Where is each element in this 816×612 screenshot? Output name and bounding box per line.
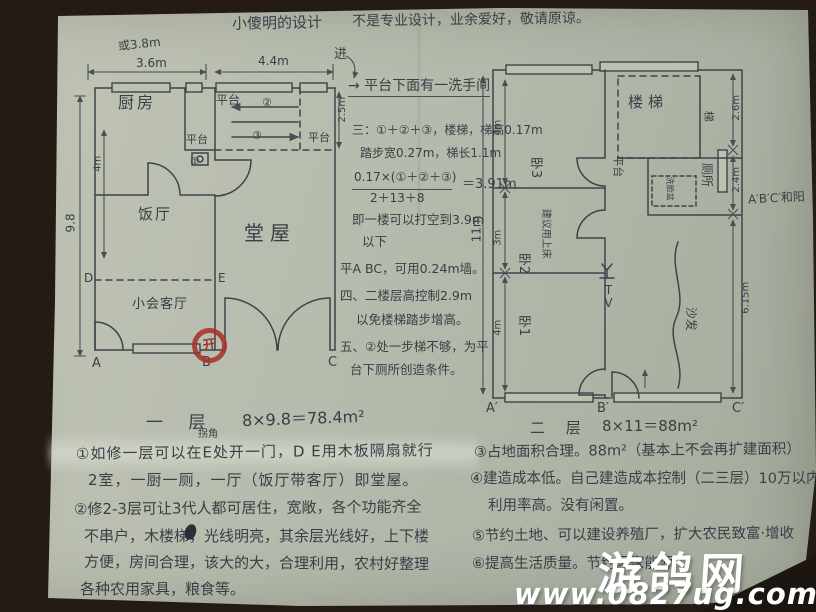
floor-height-note-cont: 以免楼梯踏步增高。 bbox=[356, 313, 469, 327]
platform-label-mid: 平台 bbox=[186, 134, 208, 147]
room-label-hall: 堂屋 bbox=[244, 222, 296, 245]
wall-thickness-note: 平A BC，可用0.24m墙。 bbox=[340, 262, 485, 276]
dim-left-3: 4m bbox=[492, 320, 504, 336]
point-c: C bbox=[328, 356, 337, 371]
room-label-kitchen: 厨房 bbox=[118, 94, 156, 112]
dim-right-1: 2.6m bbox=[731, 95, 743, 121]
left-note-line-4: 不串户，木楼梯，光线明亮，其余层光线好，上下楼 bbox=[84, 528, 429, 545]
open-height-note: 即一楼可以打空到3.9m bbox=[352, 213, 484, 227]
room-label-bed2: 卧2 bbox=[515, 253, 530, 274]
design-disclaimer: 不是专业设计，业余爱好，敬请原谅。 bbox=[352, 10, 590, 29]
right-note-land-area: ③占地面积合理。88m²（基本上不会再扩建面积） bbox=[474, 441, 801, 461]
washroom-arrow-note: → 平台下面有一洗手间 bbox=[348, 78, 490, 97]
corridor-label: 梯 bbox=[701, 111, 714, 122]
photo-of-sketch: 小傻明的设计 不是专业设计，业余爱好，敬请原谅。 或3.8m 3.6m 4.4m… bbox=[0, 0, 816, 612]
left-note-line-2: 2室，一厨一厕，一厅（饭厅带客厅）即堂屋。 bbox=[88, 472, 419, 489]
stair-step-mark-3: ③ bbox=[252, 130, 262, 143]
point-e: E bbox=[218, 272, 226, 286]
tv-label: TV bbox=[601, 284, 616, 309]
insert-correction-note: 拐角 bbox=[198, 429, 218, 441]
point-a-prime: A′ bbox=[486, 402, 498, 417]
floor-height-note: 四、二楼层高控制2.9m bbox=[340, 289, 472, 303]
entry-label: 进 bbox=[334, 48, 347, 63]
room-label-toilet: 厕所 bbox=[699, 163, 713, 187]
left-note-line-3: ②修2-3层可让3代人都可居住，宽敞，各个功能齐全 bbox=[74, 499, 422, 519]
page-title: 小傻明的设计 bbox=[232, 14, 322, 33]
dim-right-3: 6.15m bbox=[740, 282, 752, 314]
room-label-bed3: 卧3 bbox=[527, 157, 542, 178]
dim-right-width: 4.4m bbox=[258, 55, 289, 69]
sofa-label: 沙发 bbox=[683, 307, 697, 331]
stair-step-mark-2: ② bbox=[262, 97, 272, 110]
formula-underline bbox=[352, 189, 452, 190]
stair-formula-numerator: 0.17×(①＋②＋③) bbox=[354, 171, 456, 185]
dim-left-total: 11m bbox=[471, 215, 485, 242]
watermark-url: www.0827ug.com bbox=[514, 577, 816, 611]
dim-left-width: 3.6m bbox=[136, 57, 167, 71]
one-step-note-cont: 台下厕所创造条件。 bbox=[350, 363, 463, 377]
dim-right-2: 2.4m bbox=[731, 167, 743, 193]
point-d: D bbox=[84, 272, 93, 286]
open-height-note-cont: 以下 bbox=[362, 235, 387, 249]
point-a: A bbox=[92, 357, 101, 372]
stair-note-line1: 三：①＋②＋③，楼梯，梯高0.17m bbox=[352, 124, 543, 138]
dim-platform-height: 2.5m bbox=[337, 97, 349, 123]
stair-step-mark-1: ① bbox=[190, 156, 200, 169]
second-floor-area: 8×11＝88m² bbox=[602, 418, 698, 435]
room-label-stairs: 楼梯 bbox=[628, 94, 668, 111]
stair-formula-result: ＝3.91m bbox=[462, 178, 517, 193]
bed2-note: 建议用上床 bbox=[539, 209, 551, 259]
stair-formula-substitution: 2＋13＋8 bbox=[370, 192, 425, 206]
platform-label-top: 平台 bbox=[216, 94, 240, 108]
room-label-reception: 小会客厅 bbox=[132, 298, 188, 313]
stamp-character: 开 bbox=[202, 337, 217, 354]
dim-total-height: 9.8 bbox=[65, 213, 79, 232]
dim-kitchen-height: 4m bbox=[92, 156, 104, 172]
stair-note-line2: 踏步宽0.27m，梯长1.1m bbox=[360, 147, 501, 161]
room-label-dining: 饭厅 bbox=[138, 206, 172, 223]
dim-left-1: 4m bbox=[492, 120, 504, 136]
first-floor-plan bbox=[74, 56, 355, 356]
basin-label: 洗脸盆 bbox=[665, 177, 674, 201]
one-step-note: 五、②处一步梯不够，为平 bbox=[340, 340, 489, 354]
platform-vertical-label: 平台 bbox=[611, 155, 624, 177]
point-b-prime: B′ bbox=[597, 402, 609, 417]
point-c-prime: C′ bbox=[732, 402, 744, 417]
right-note-cost-cont: 利用率高。没有闲置。 bbox=[488, 498, 633, 515]
dim-left-2: 3m bbox=[492, 230, 504, 246]
right-note-cost: ④建造成本低。自己建造成本控制（二三层）10万以内 bbox=[470, 471, 816, 488]
platform-label-right: 平台 bbox=[308, 132, 330, 145]
left-note-line-5: 方便，房间合理，该大的大，合理利用，农村好整理 bbox=[84, 554, 429, 574]
second-floor-caption: 二 层 bbox=[530, 420, 589, 437]
room-label-bed1: 卧1 bbox=[515, 315, 530, 336]
left-note-line-6: 各种农用家具，粮食等。 bbox=[80, 581, 245, 598]
